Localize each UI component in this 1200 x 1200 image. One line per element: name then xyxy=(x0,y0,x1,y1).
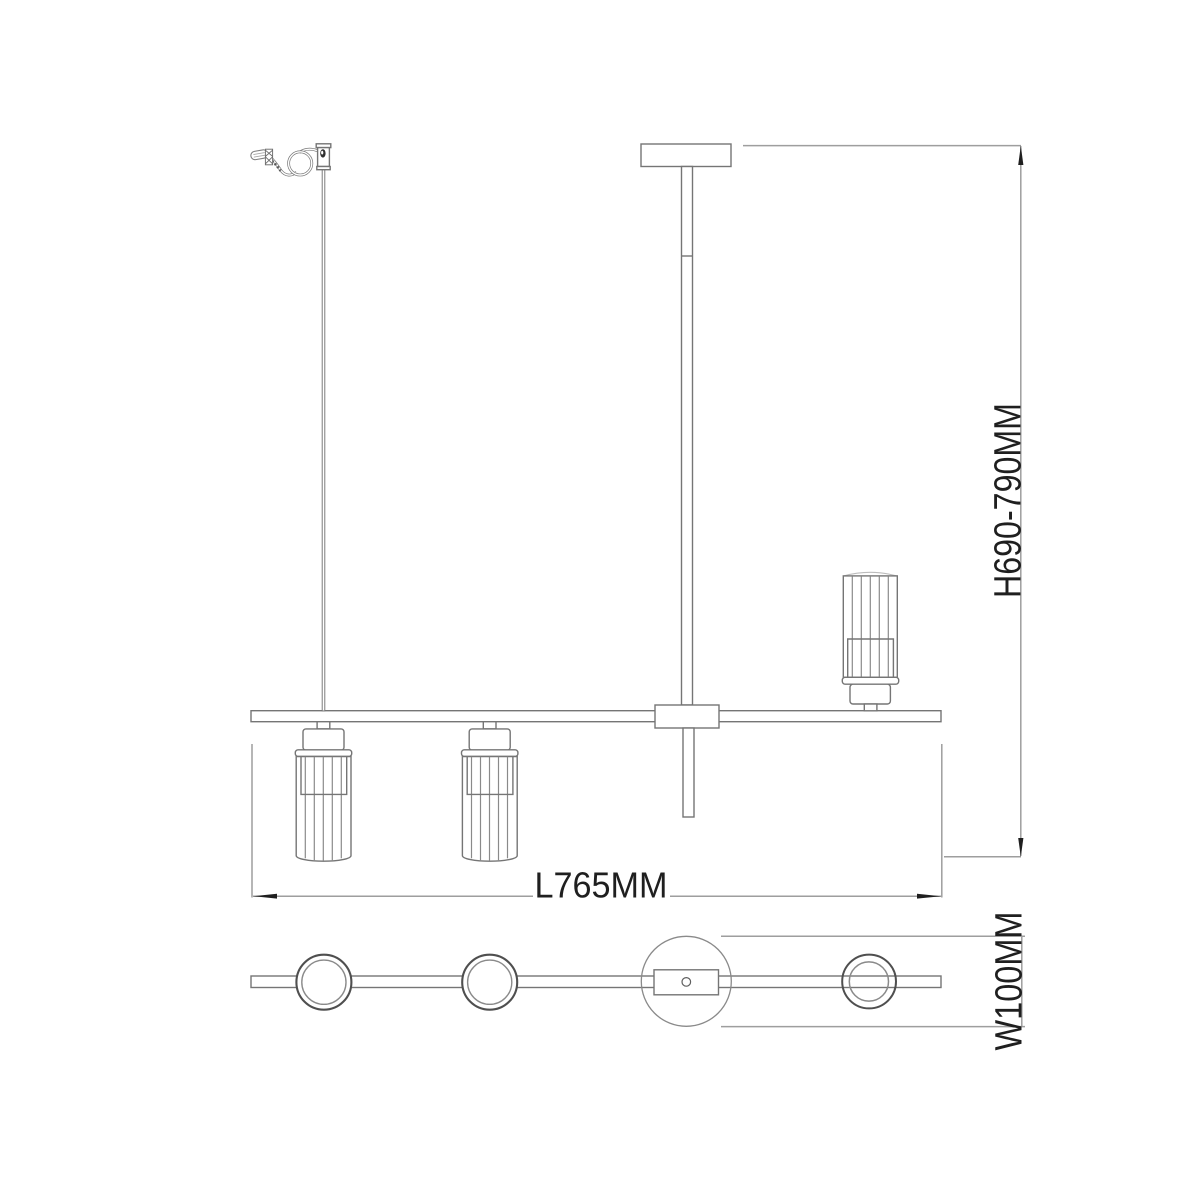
svg-text:H690-790MM: H690-790MM xyxy=(988,403,1030,598)
svg-text:L765MM: L765MM xyxy=(535,865,668,906)
svg-text:W100MM: W100MM xyxy=(989,912,1031,1051)
